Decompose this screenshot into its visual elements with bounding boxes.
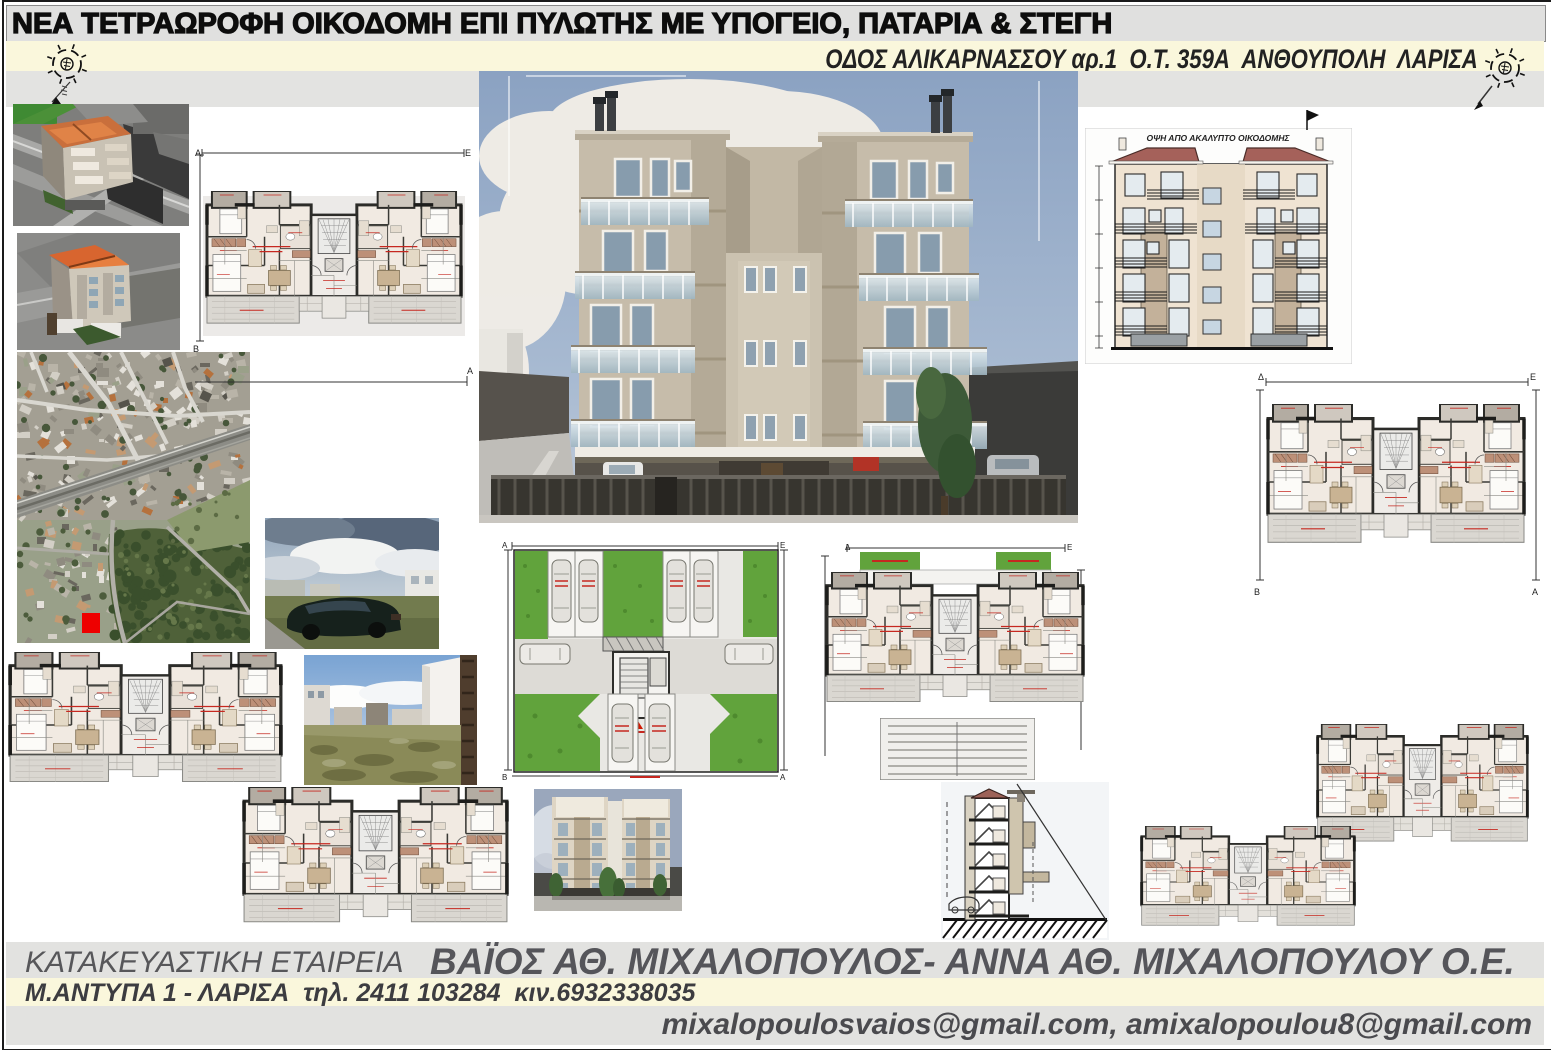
svg-text:B: B (502, 773, 507, 782)
svg-text:E: E (1530, 372, 1536, 382)
svg-text:A: A (780, 773, 786, 782)
svg-text:A: A (502, 541, 508, 550)
svg-text:E: E (465, 148, 471, 158)
svg-text:A: A (195, 148, 201, 158)
svg-text:Δ: Δ (845, 543, 851, 552)
svg-text:A: A (1532, 587, 1538, 597)
svg-text:Δ: Δ (1258, 372, 1264, 382)
svg-text:B: B (1254, 587, 1260, 597)
svg-text:B: B (193, 344, 199, 354)
svg-text:E: E (1067, 543, 1072, 552)
svg-text:A: A (467, 366, 473, 376)
svg-text:E: E (780, 541, 785, 550)
svg-text:ΟΨΗ ΑΠΟ ΑΚΑΛΥΠΤΟ ΟΙΚΟΔΟΜΗΣ: ΟΨΗ ΑΠΟ ΑΚΑΛΥΠΤΟ ΟΙΚΟΔΟΜΗΣ (1146, 133, 1290, 143)
